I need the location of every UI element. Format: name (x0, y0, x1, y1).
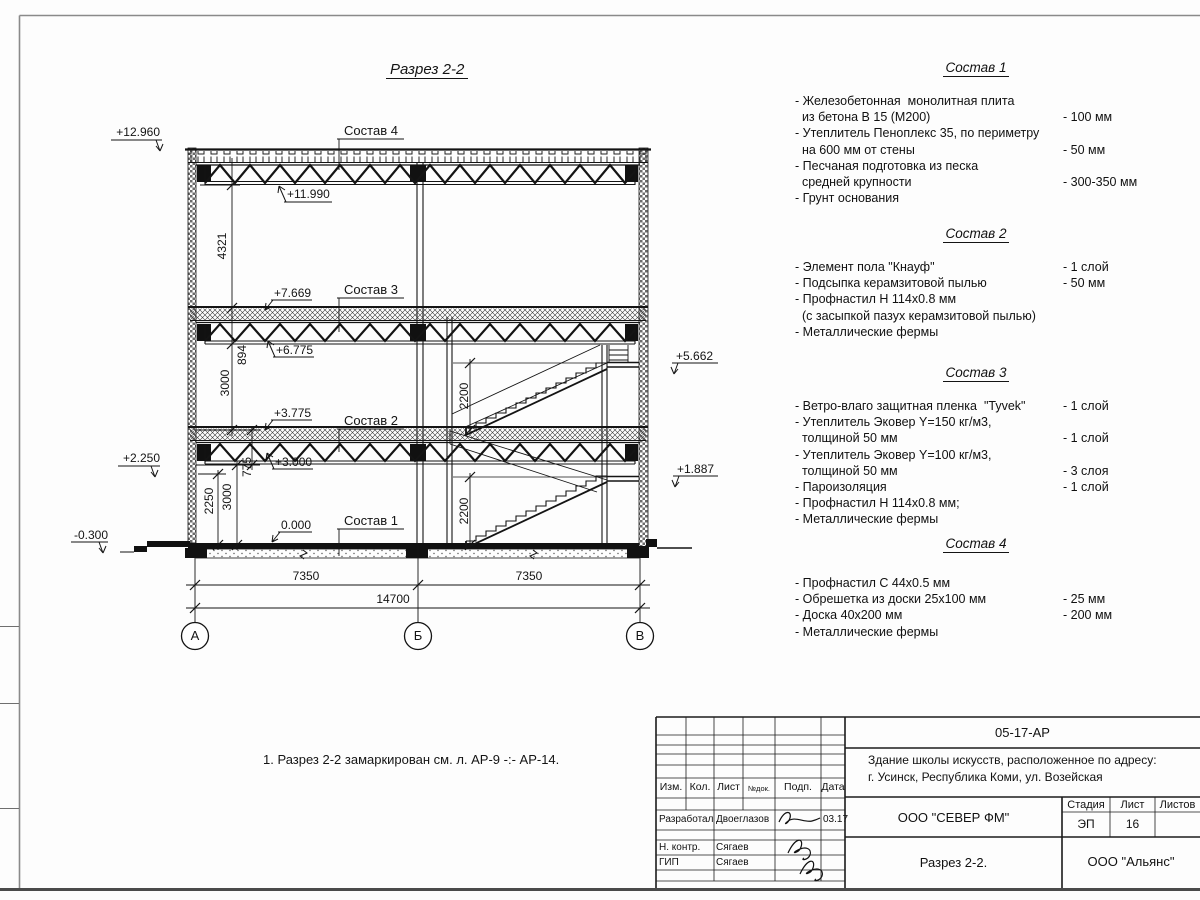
level-mark-neg0300: -0.300 (66, 529, 108, 542)
layer-value: - 50 мм (1063, 143, 1105, 157)
composition-1-heading: Состав 1 (780, 60, 1172, 75)
level-mark-2250: +2.250 (114, 452, 160, 465)
doc-code: 05-17-АР (845, 725, 1200, 740)
composition-2-heading: Состав 2 (780, 226, 1172, 241)
layer-value: - 100 мм (1063, 110, 1112, 124)
axis-label-v: В (626, 629, 654, 642)
composition-line: - Профнастил Н 114х0.8 мм; (780, 496, 1190, 512)
layer-text: - Грунт основания (795, 191, 899, 205)
layer-value: - 1 слой (1063, 260, 1109, 274)
layer-text: - Утеплитель Эковер Y=150 кг/м3, (795, 415, 991, 429)
layer-ref-sostav1: Состав 1 (336, 514, 406, 527)
layer-ref-sostav4: Состав 4 (336, 124, 406, 137)
drawing-title: Разрез 2-2 (386, 63, 468, 79)
drawing-sheet: Разрез 2-2 +12.960 +11.990 +7.669 +6.775… (0, 0, 1200, 900)
signature-strokes (779, 812, 822, 880)
composition-line: - Доска 40х200 мм - 200 мм (780, 608, 1190, 624)
layer-text: - Утеплитель Эковер Y=100 кг/м3, (795, 448, 991, 462)
composition-line: - Пароизоляция - 1 слой (780, 480, 1190, 496)
level-mark-3000: +3.000 (275, 456, 312, 469)
sheets-label: Листов (1155, 799, 1200, 811)
col-list: Лист (714, 781, 743, 793)
project-name-line2: г. Усинск, Республика Коми, ул. Возейска… (868, 770, 1103, 784)
layer-text: толщиной 50 мм (795, 464, 898, 478)
composition-line: - Утеплитель Пеноплекс 35, по периметру (780, 126, 1190, 142)
level-mark-11990: +11.990 (287, 188, 330, 201)
composition-line: - Утеплитель Эковер Y=150 кг/м3, (780, 415, 1190, 431)
col-ndok: №док. (743, 784, 775, 793)
layer-text: - Пароизоляция (795, 480, 887, 494)
layer-value: - 300-350 мм (1063, 175, 1137, 189)
composition-4-heading: Состав 4 (780, 536, 1172, 551)
col-podp: Подп. (775, 781, 821, 793)
row2-name: Сягаев (716, 842, 749, 853)
composition-line: - Металлические фермы (780, 512, 1190, 528)
composition-4-lines: - Профнастил С 44х0.5 мм - Обрешетка из … (780, 576, 1190, 641)
layer-text: - Профнастил Н 114х0.8 мм; (795, 496, 960, 510)
org1-name: ООО "СЕВЕР ФМ" (845, 810, 1062, 825)
composition-line: - Элемент пола "Кнауф" - 1 слой (780, 260, 1190, 276)
composition-line: - Металлические фермы (780, 325, 1190, 341)
layer-ref-sostav3: Состав 3 (336, 283, 406, 296)
col-izm: Изм. (656, 781, 686, 793)
sheet-value: 16 (1110, 817, 1155, 831)
layer-value: - 200 мм (1063, 608, 1112, 622)
level-mark-1887: +1.887 (677, 463, 714, 476)
layer-text: - Профнастил С 44х0.5 мм (795, 576, 950, 590)
composition-line: толщиной 50 мм - 1 слой (780, 431, 1190, 447)
layer-value: - 1 слой (1063, 431, 1109, 445)
layer-value: - 1 слой (1063, 480, 1109, 494)
level-mark-5662: +5.662 (676, 350, 713, 363)
layer-text: - Профнастил Н 114х0.8 мм (795, 292, 956, 306)
layer-text: - Металлические фермы (795, 325, 938, 339)
col-data: Дата (821, 781, 845, 793)
layer-text: - Металлические фермы (795, 512, 938, 526)
composition-line: - Ветро-влаго защитная пленка "Tyvek" - … (780, 399, 1190, 415)
level-mark-0000: 0.000 (281, 519, 311, 532)
drawing-name: Разрез 2-2. (845, 855, 1062, 870)
level-mark-7669: +7.669 (274, 287, 311, 300)
composition-1-lines: - Железобетонная монолитная плита из бет… (780, 94, 1190, 207)
layer-text: - Подсыпка керамзитовой пылью (795, 276, 987, 290)
stage-label: Стадия (1062, 799, 1110, 811)
dim-3000-a: 3000 (218, 361, 232, 405)
project-name-line1: Здание школы искусств, расположенное по … (868, 753, 1157, 767)
composition-line: - Грунт основания (780, 191, 1190, 207)
level-mark-6775: +6.775 (276, 344, 313, 357)
composition-line: - Профнастил Н 114х0.8 мм (780, 292, 1190, 308)
layer-text: на 600 мм от стены (795, 143, 915, 157)
dim-2200-b: 2200 (457, 489, 471, 533)
composition-line: - Песчаная подготовка из песка (780, 159, 1190, 175)
layer-text: - Песчаная подготовка из песка (795, 159, 978, 173)
composition-line: на 600 мм от стены - 50 мм (780, 143, 1190, 159)
composition-line: - Профнастил С 44х0.5 мм (780, 576, 1190, 592)
axis-label-a: А (181, 629, 209, 642)
layer-text: - Железобетонная монолитная плита (795, 94, 1014, 108)
dim-7350-b: 7350 (499, 570, 559, 583)
layer-text: - Элемент пола "Кнауф" (795, 260, 935, 274)
org2-name: ООО "Альянс" (1062, 854, 1200, 869)
layer-ref-sostav2: Состав 2 (336, 414, 406, 427)
row1-role: Разработал (659, 814, 713, 825)
dim-2250: 2250 (202, 479, 216, 523)
composition-line: толщиной 50 мм - 3 слоя (780, 464, 1190, 480)
composition-line: (с засыпкой пазух керамзитовой пылью) (780, 309, 1190, 325)
composition-3-heading: Состав 3 (780, 365, 1172, 380)
layer-text: средней крупности (795, 175, 912, 189)
axis-label-b: Б (404, 629, 432, 642)
drawing-note: 1. Разрез 2-2 замаркирован см. л. АР-9 -… (263, 753, 559, 766)
dim-14700: 14700 (358, 593, 428, 606)
dim-2200-a: 2200 (457, 374, 471, 418)
layer-text: - Ветро-влаго защитная пленка "Tyvek" (795, 399, 1025, 413)
dim-775: 775 (240, 445, 254, 489)
composition-line: из бетона В 15 (М200) - 100 мм (780, 110, 1190, 126)
layer-text: толщиной 50 мм (795, 431, 898, 445)
layer-text: - Доска 40х200 мм (795, 608, 902, 622)
layer-value: - 50 мм (1063, 276, 1105, 290)
composition-line: - Подсыпка керамзитовой пылью - 50 мм (780, 276, 1190, 292)
building-section (71, 139, 718, 650)
layer-text: - Обрешетка из доски 25х100 мм (795, 592, 986, 606)
layer-value: - 3 слоя (1063, 464, 1108, 478)
composition-3-lines: - Ветро-влаго защитная пленка "Tyvek" - … (780, 399, 1190, 529)
row3-name: Сягаев (716, 857, 749, 868)
level-mark-3775: +3.775 (274, 407, 311, 420)
layer-value: - 25 мм (1063, 592, 1105, 606)
dim-7350-a: 7350 (276, 570, 336, 583)
composition-line: - Обрешетка из доски 25х100 мм - 25 мм (780, 592, 1190, 608)
composition-line: средней крупности - 300-350 мм (780, 175, 1190, 191)
col-kol: Кол. (686, 781, 714, 793)
layer-text: - Металлические фермы (795, 625, 938, 639)
row2-role: Н. контр. (659, 842, 700, 853)
layer-text: - Утеплитель Пеноплекс 35, по периметру (795, 126, 1039, 140)
layer-text: (с засыпкой пазух керамзитовой пылью) (795, 309, 1036, 323)
composition-line: - Утеплитель Эковер Y=100 кг/м3, (780, 448, 1190, 464)
dim-4321: 4321 (215, 224, 229, 268)
dim-894: 894 (235, 333, 249, 377)
layer-value: - 1 слой (1063, 399, 1109, 413)
composition-line: - Металлические фермы (780, 625, 1190, 641)
row3-role: ГИП (659, 857, 679, 868)
composition-2-lines: - Элемент пола "Кнауф" - 1 слой - Подсып… (780, 260, 1190, 341)
sheet-label: Лист (1110, 799, 1155, 811)
level-mark-12960: +12.960 (108, 126, 160, 139)
stage-value: ЭП (1062, 817, 1110, 831)
row1-name: Двоеглазов (716, 814, 769, 825)
composition-line: - Железобетонная монолитная плита (780, 94, 1190, 110)
dim-3000-b: 3000 (220, 475, 234, 519)
layer-text: из бетона В 15 (М200) (795, 110, 930, 124)
